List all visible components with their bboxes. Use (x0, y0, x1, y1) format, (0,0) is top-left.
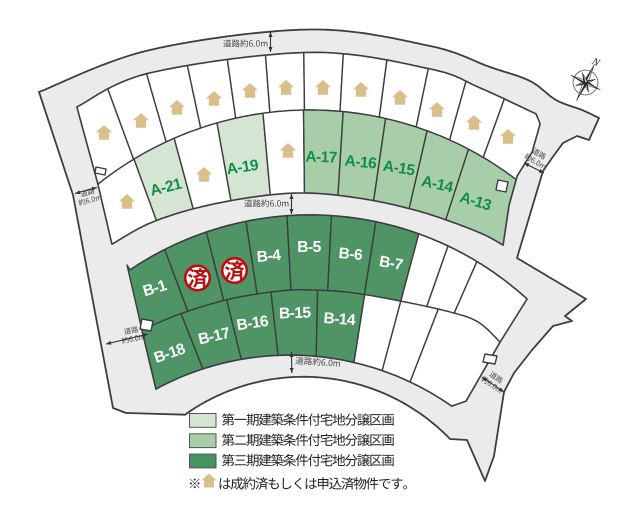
svg-text:A-17: A-17 (305, 148, 337, 166)
svg-text:B-6: B-6 (338, 245, 364, 264)
svg-text:B-5: B-5 (297, 239, 321, 256)
svg-text:A-16: A-16 (344, 152, 378, 172)
svg-text:B-4: B-4 (256, 247, 282, 266)
svg-text:B-14: B-14 (323, 310, 357, 329)
svg-text:B-15: B-15 (279, 304, 312, 322)
